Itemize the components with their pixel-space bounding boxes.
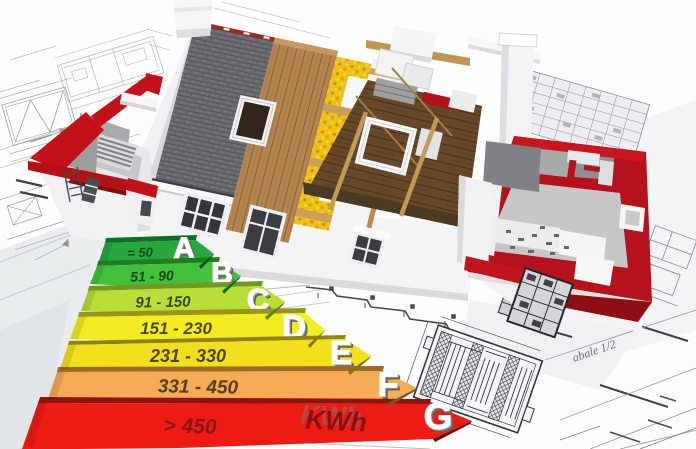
svg-text:> 450: > 450 xyxy=(163,414,217,439)
svg-text:51 - 90: 51 - 90 xyxy=(130,267,174,285)
svg-text:91 - 150: 91 - 150 xyxy=(135,294,191,312)
svg-text:= 50: = 50 xyxy=(127,245,154,261)
svg-text:331 - 450: 331 - 450 xyxy=(158,376,239,398)
svg-text:231 - 330: 231 - 330 xyxy=(149,346,226,366)
svg-text:G: G xyxy=(424,396,453,437)
svg-text:E: E xyxy=(330,334,352,371)
svg-text:151 - 230: 151 - 230 xyxy=(140,319,212,338)
svg-text:KWh: KWh xyxy=(305,404,368,437)
svg-text:F: F xyxy=(378,366,399,404)
